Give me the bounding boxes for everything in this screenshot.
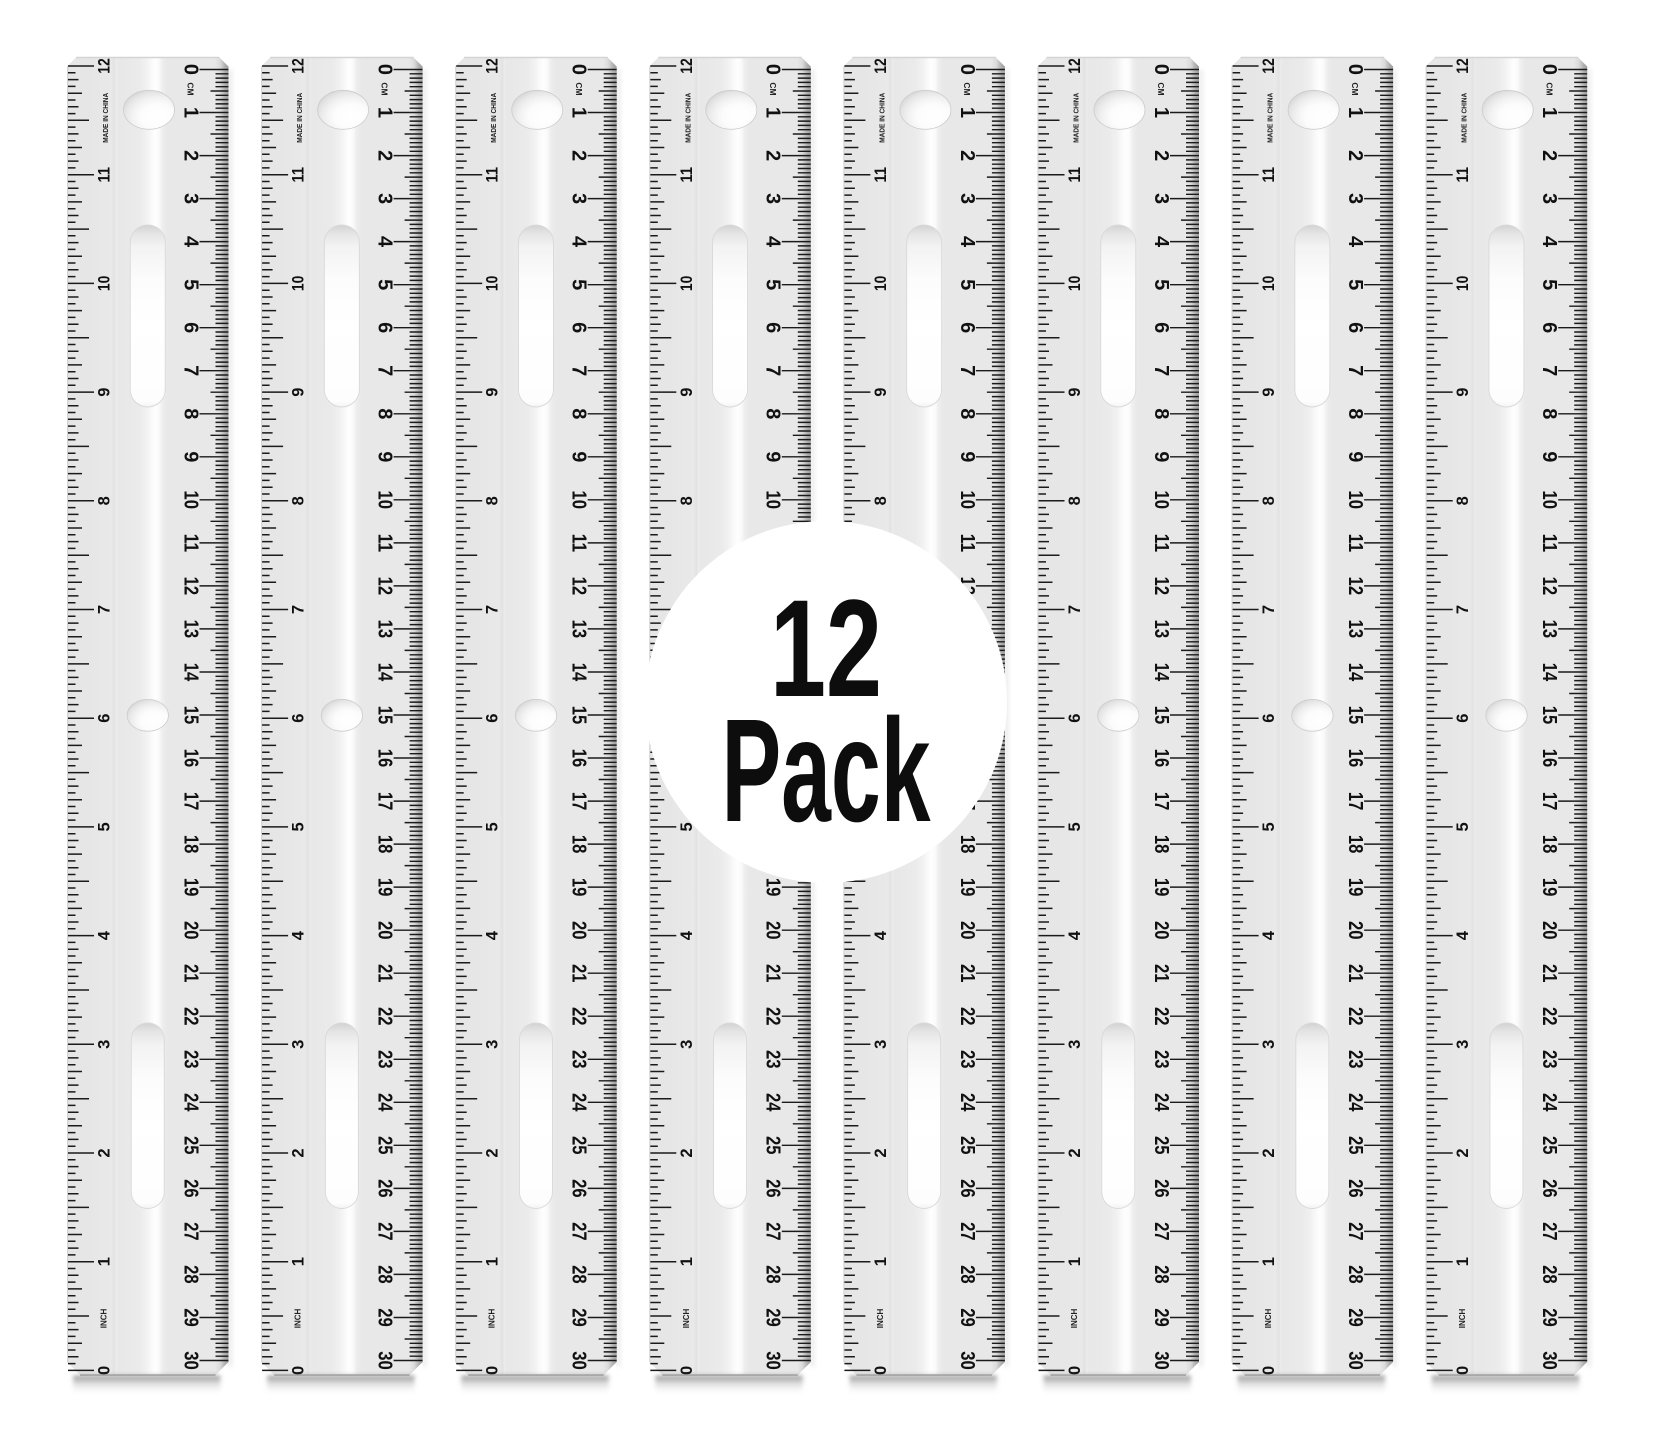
svg-text:Pack: Pack xyxy=(722,689,931,853)
